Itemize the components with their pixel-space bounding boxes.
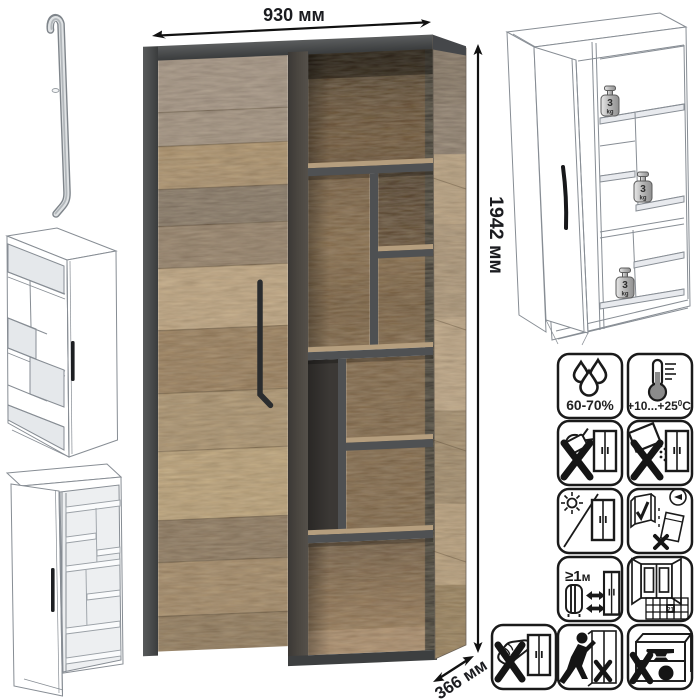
svg-text:kg: kg <box>606 110 613 116</box>
svg-text:3: 3 <box>640 184 646 195</box>
svg-text:3: 3 <box>607 98 613 109</box>
svg-text:21: 21 <box>667 608 674 614</box>
svg-text:1942 мм: 1942 мм <box>485 196 507 274</box>
svg-text:3: 3 <box>622 280 628 291</box>
svg-text:60-70%: 60-70% <box>566 398 614 413</box>
svg-text:≥1м: ≥1м <box>565 568 591 585</box>
svg-text:kg: kg <box>621 292 628 298</box>
svg-text:kg: kg <box>639 196 646 202</box>
svg-text:+10...+250C: +10...+250C <box>627 399 691 413</box>
svg-text:930 мм: 930 мм <box>263 5 325 25</box>
